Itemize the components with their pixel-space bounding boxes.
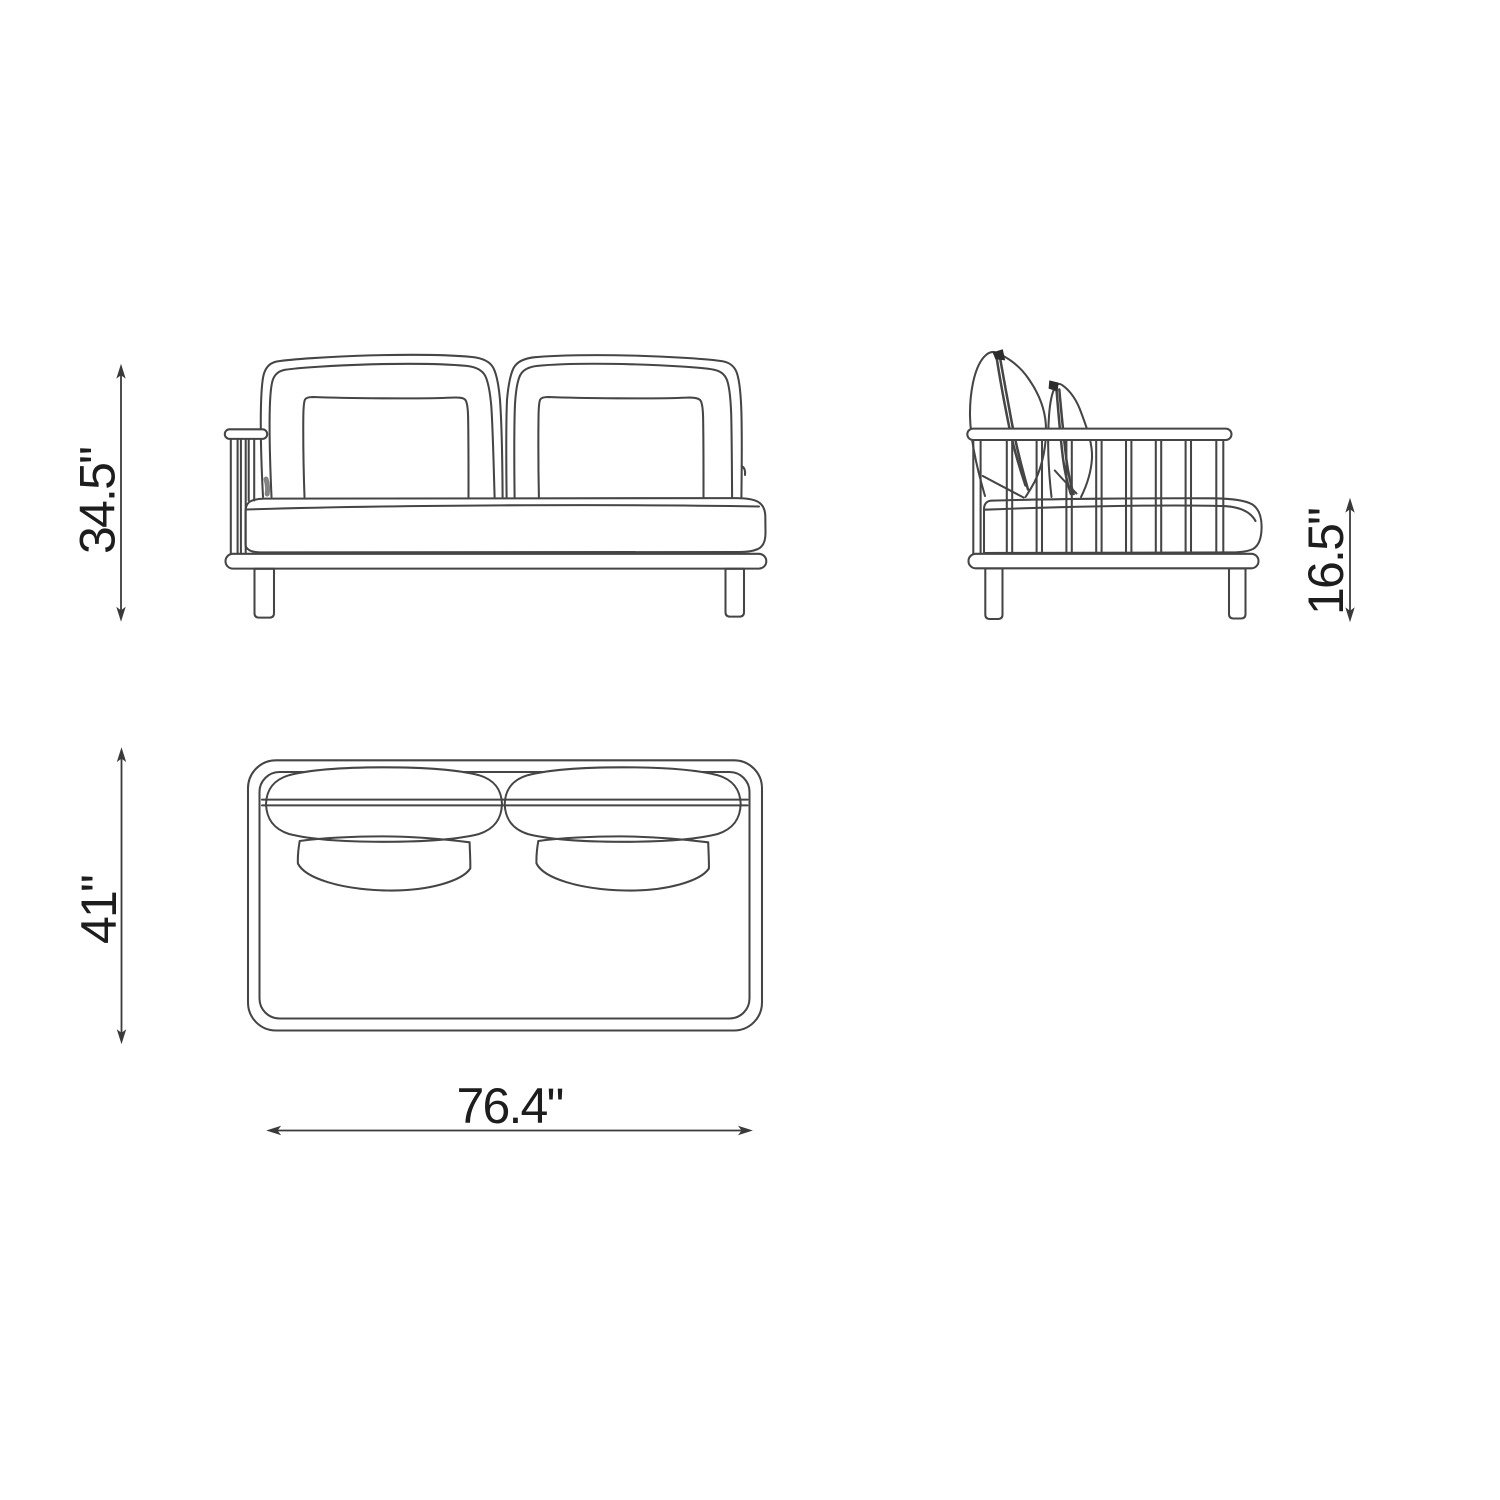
svg-text:41": 41" <box>71 876 127 944</box>
svg-text:16.5": 16.5" <box>1298 509 1354 615</box>
svg-text:34.5": 34.5" <box>70 448 126 554</box>
svg-text:76.4": 76.4" <box>456 1078 562 1134</box>
